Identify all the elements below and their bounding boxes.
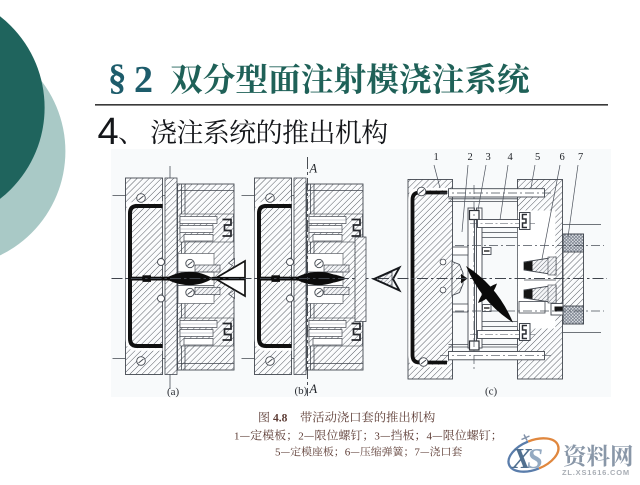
svg-text:4: 4 [98, 111, 119, 153]
svg-text:4: 4 [508, 152, 514, 163]
svg-text:A: A [309, 382, 318, 396]
svg-text:ZL.XS1616.COM: ZL.XS1616.COM [562, 468, 630, 477]
svg-text:1: 1 [234, 431, 240, 443]
svg-text:4: 4 [427, 431, 433, 443]
svg-text:2: 2 [134, 59, 153, 101]
svg-text:(a): (a) [167, 386, 180, 398]
svg-text:3: 3 [486, 152, 491, 163]
svg-text:6: 6 [345, 447, 351, 459]
svg-text:5: 5 [535, 152, 540, 163]
svg-text:S: S [527, 443, 543, 475]
svg-text:7: 7 [578, 152, 583, 163]
svg-text:1: 1 [434, 152, 439, 163]
svg-text:(b): (b) [295, 385, 308, 397]
svg-text:2: 2 [298, 431, 304, 443]
svg-text:§: § [108, 58, 127, 99]
svg-text:6: 6 [560, 152, 565, 163]
svg-text:A: A [309, 162, 318, 176]
svg-text:2: 2 [468, 152, 473, 163]
svg-text:(c): (c) [485, 386, 498, 398]
svg-text:3: 3 [374, 431, 380, 443]
svg-text:7: 7 [414, 447, 420, 459]
svg-text:5: 5 [275, 447, 281, 459]
svg-text:4.8: 4.8 [273, 413, 288, 425]
